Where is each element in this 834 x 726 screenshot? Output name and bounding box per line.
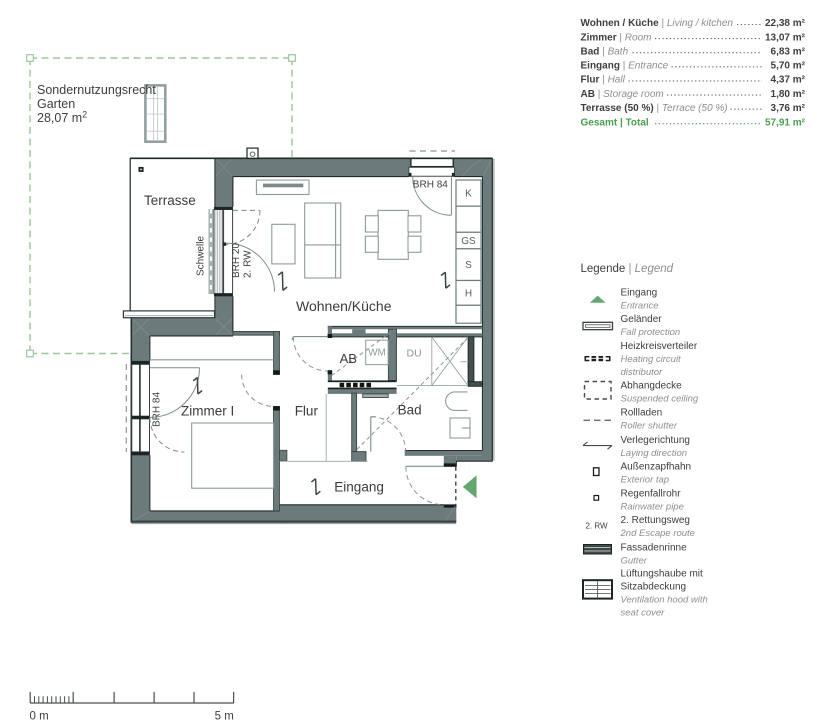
- svg-text:Fassadenrinne: Fassadenrinne: [621, 543, 688, 554]
- svg-text:AB: AB: [340, 351, 357, 366]
- svg-text:BRH 84: BRH 84: [152, 392, 163, 427]
- svg-text:Heating circuit: Heating circuit: [621, 354, 682, 365]
- svg-text:BRH 84: BRH 84: [413, 180, 448, 191]
- svg-text:Rollladen: Rollladen: [621, 408, 663, 419]
- svg-text:Eingang: Eingang: [621, 288, 658, 299]
- svg-text:H: H: [465, 289, 472, 300]
- svg-text:Außenzapfhahn: Außenzapfhahn: [621, 462, 692, 473]
- svg-text:Lüftungshaube mit: Lüftungshaube mit: [621, 569, 704, 580]
- svg-text:2. RW: 2. RW: [586, 522, 609, 531]
- svg-text:0 m: 0 m: [30, 711, 49, 723]
- svg-text:Zimmer I: Zimmer I: [181, 404, 234, 419]
- svg-text:Flur | Hall: Flur | Hall: [581, 75, 626, 86]
- svg-text:Bad: Bad: [398, 403, 422, 418]
- svg-text:Fall protection: Fall protection: [621, 327, 681, 338]
- svg-text:Wohnen / Küche | Living / kitc: Wohnen / Küche | Living / kitchen: [581, 18, 734, 29]
- svg-text:4,37 m²: 4,37 m²: [771, 75, 806, 86]
- svg-text:K: K: [465, 189, 472, 200]
- svg-text:3,76 m²: 3,76 m²: [771, 103, 806, 114]
- svg-text:6,83 m²: 6,83 m²: [771, 46, 806, 57]
- svg-text:Abhangdecke: Abhangdecke: [621, 381, 683, 392]
- svg-text:Eingang | Entrance: Eingang | Entrance: [581, 61, 669, 72]
- svg-text:5 m: 5 m: [215, 711, 234, 723]
- svg-text:Schwelle: Schwelle: [196, 236, 207, 276]
- svg-text:Zimmer | Room: Zimmer | Room: [581, 32, 652, 43]
- svg-text:AB | Storage room: AB | Storage room: [581, 89, 664, 100]
- svg-text:57,91 m²: 57,91 m²: [765, 117, 806, 128]
- svg-text:Entrance: Entrance: [621, 301, 659, 312]
- svg-text:Laying direction: Laying direction: [621, 448, 688, 459]
- svg-text:Bad | Bath: Bad | Bath: [581, 46, 629, 57]
- svg-text:BRH 20: BRH 20: [231, 243, 242, 278]
- svg-text:1,80 m²: 1,80 m²: [771, 89, 806, 100]
- svg-text:22,38 m²: 22,38 m²: [765, 18, 806, 29]
- svg-text:Legende | Legend: Legende | Legend: [581, 263, 674, 275]
- svg-text:Garten: Garten: [37, 97, 75, 111]
- svg-text:Wohnen/Küche: Wohnen/Küche: [296, 298, 392, 314]
- svg-text:DU: DU: [407, 348, 422, 360]
- svg-text:Terrasse: Terrasse: [144, 193, 196, 208]
- svg-text:Gutter: Gutter: [621, 556, 648, 567]
- svg-text:Gesamt | Total: Gesamt | Total: [581, 117, 649, 128]
- svg-text:Sitzabdeckung: Sitzabdeckung: [621, 582, 687, 593]
- svg-text:5,70 m²: 5,70 m²: [771, 61, 806, 72]
- svg-text:Sondernutzungsrecht: Sondernutzungsrecht: [37, 83, 156, 97]
- svg-text:Regenfallrohr: Regenfallrohr: [621, 489, 682, 500]
- svg-text:Verlegerichtung: Verlegerichtung: [621, 435, 691, 446]
- svg-text:GS: GS: [461, 236, 476, 247]
- svg-text:Geländer: Geländer: [621, 314, 663, 325]
- svg-text:seat cover: seat cover: [621, 608, 666, 619]
- svg-text:WM: WM: [368, 348, 386, 359]
- svg-text:S: S: [465, 260, 472, 271]
- svg-text:Heizkreisverteiler: Heizkreisverteiler: [621, 341, 698, 352]
- svg-text:2. Rettungsweg: 2. Rettungsweg: [621, 515, 691, 526]
- svg-text:2. RW: 2. RW: [243, 250, 254, 278]
- svg-text:Flur: Flur: [295, 404, 319, 419]
- svg-text:Eingang: Eingang: [334, 480, 384, 495]
- svg-text:28,07 m2: 28,07 m2: [37, 110, 87, 126]
- svg-text:Terrasse (50 %) | Terrace (50: Terrasse (50 %) | Terrace (50 %): [581, 103, 728, 114]
- svg-text:13,07 m²: 13,07 m²: [765, 32, 806, 43]
- svg-text:Ventilation hood with: Ventilation hood with: [621, 595, 708, 606]
- svg-text:Suspended ceiling: Suspended ceiling: [621, 394, 699, 405]
- svg-text:distributor: distributor: [621, 367, 664, 378]
- svg-text:Rainwater pipe: Rainwater pipe: [621, 502, 684, 513]
- svg-text:2nd Escape route: 2nd Escape route: [620, 528, 695, 539]
- svg-text:Exterior tap: Exterior tap: [621, 475, 670, 486]
- svg-text:Roller shutter: Roller shutter: [621, 421, 678, 432]
